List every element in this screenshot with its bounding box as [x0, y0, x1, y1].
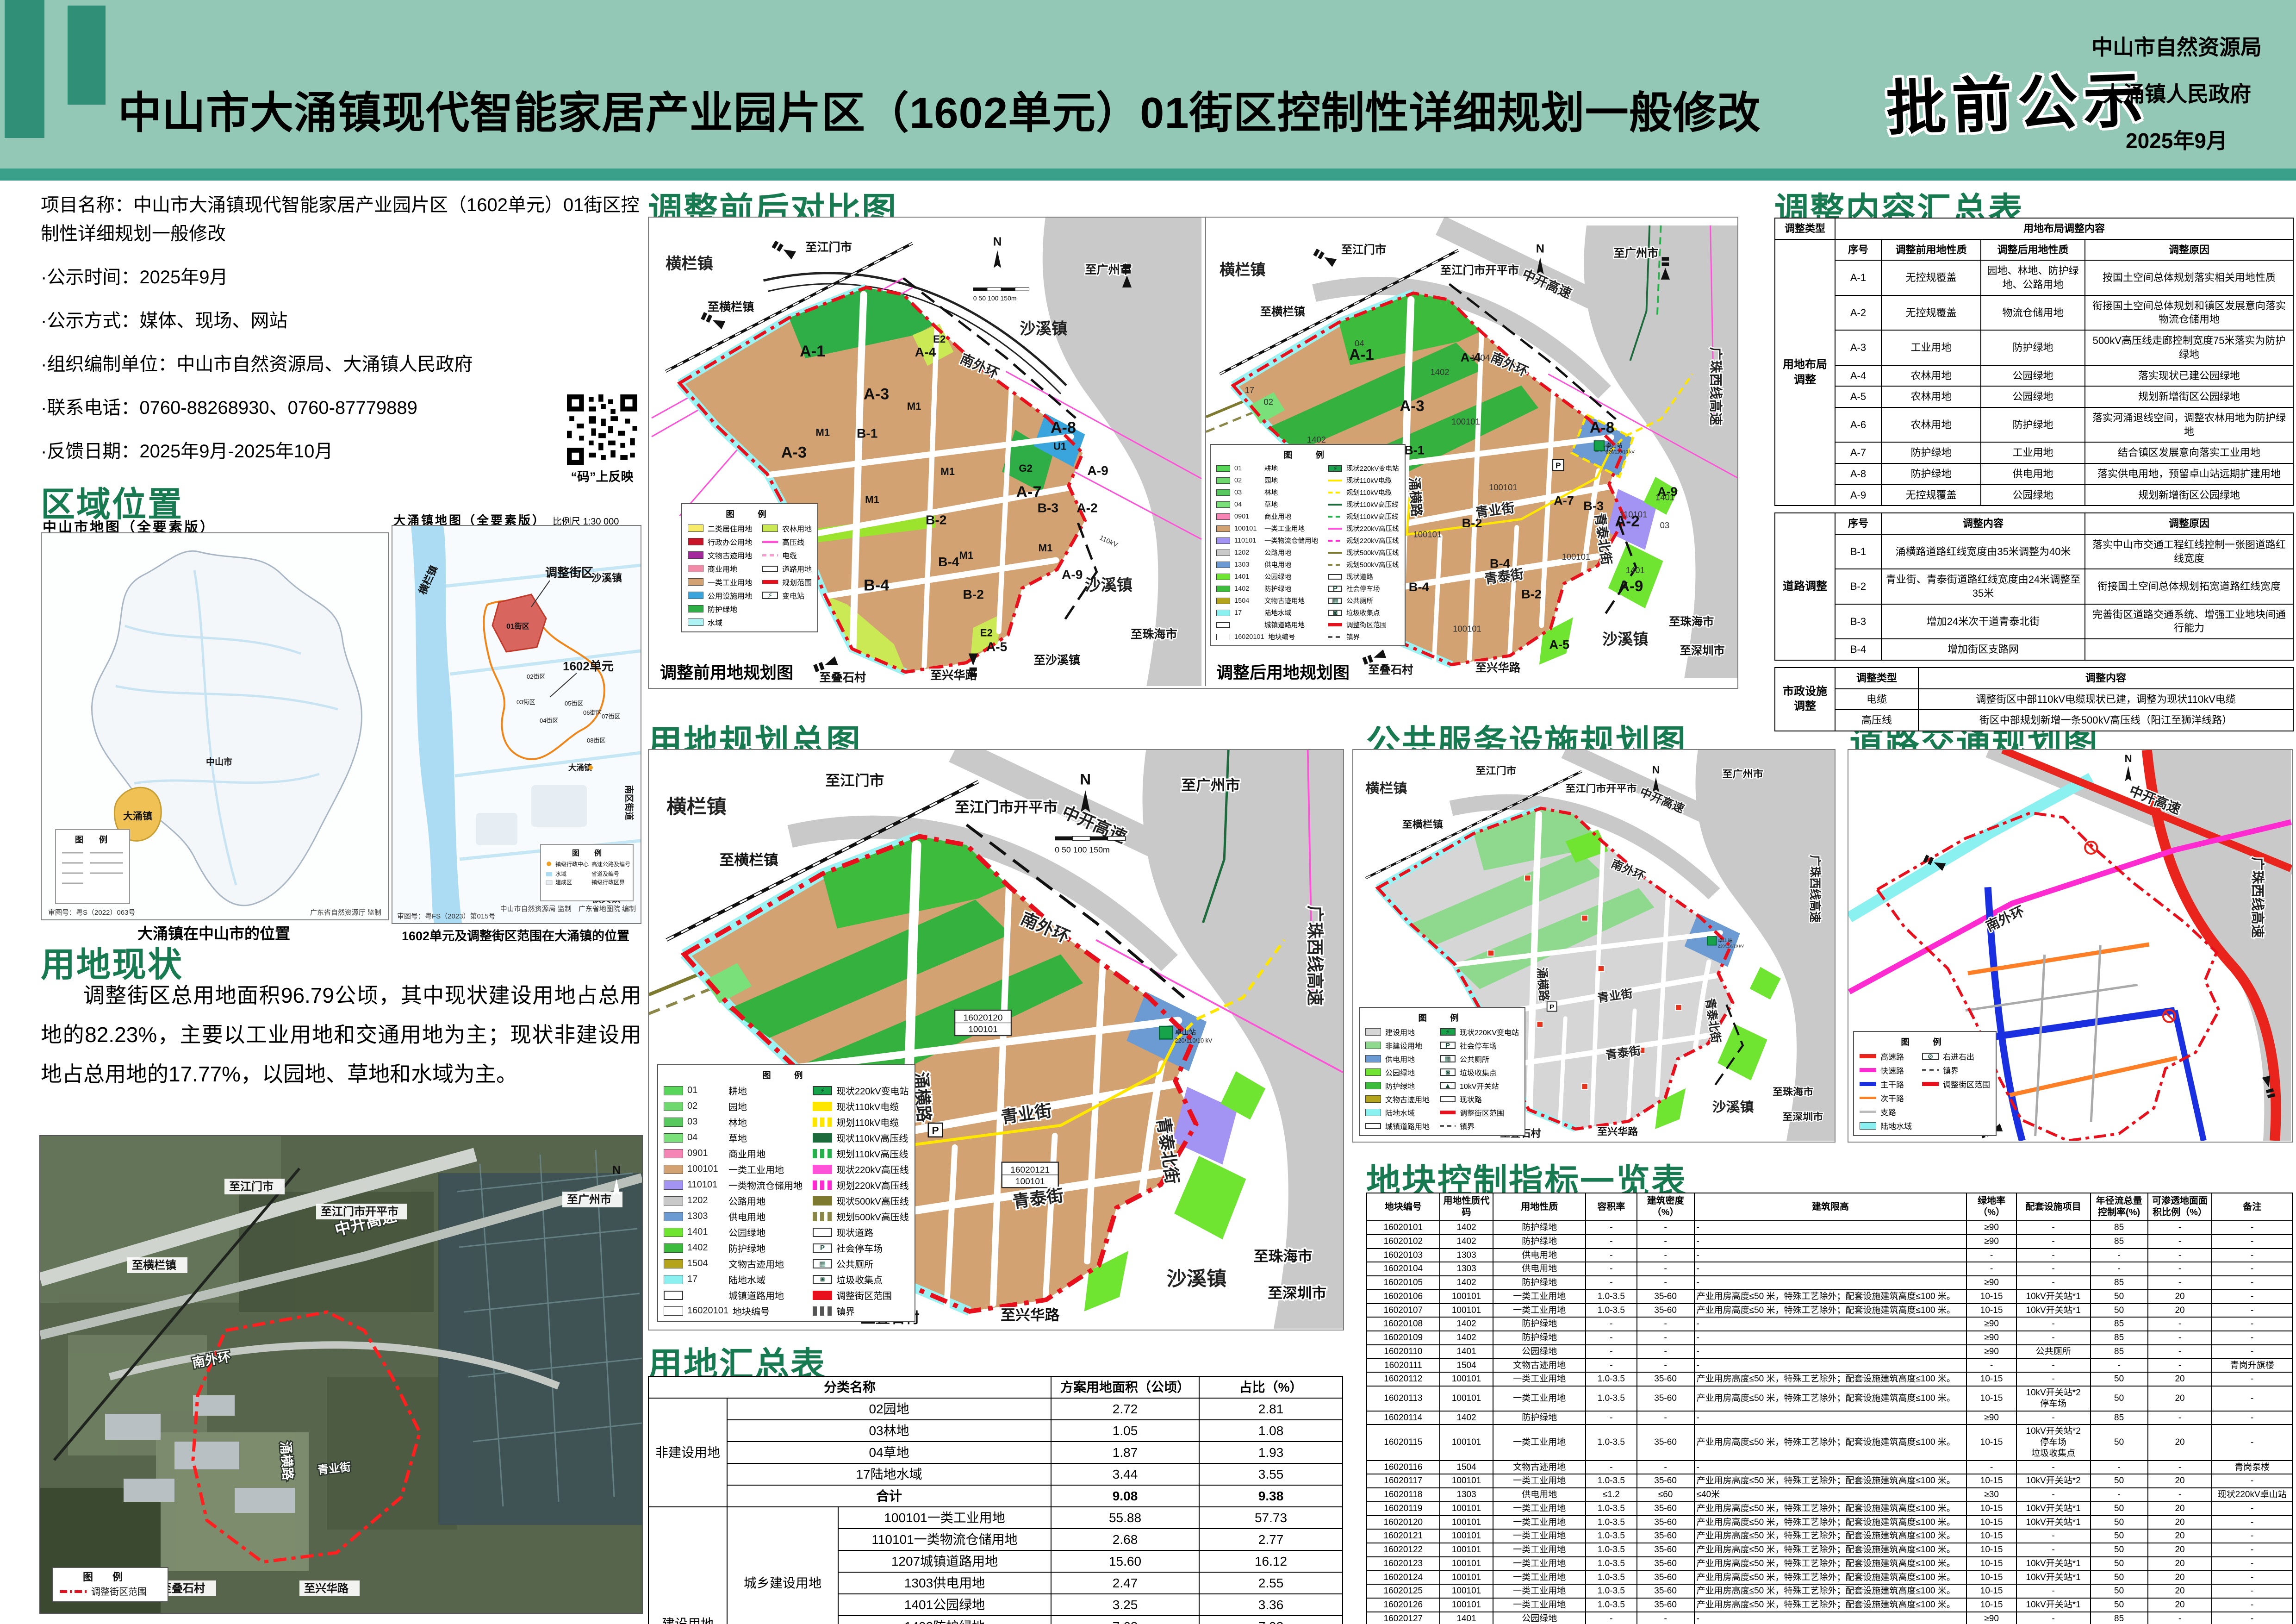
cell: 一类工业用地	[1493, 1598, 1586, 1612]
svg-text:高速公路及编号: 高速公路及编号	[591, 861, 630, 868]
legend-item: 镇界	[1922, 1064, 1990, 1076]
cell: -	[1586, 1317, 1636, 1331]
cell: 公共厕所	[2016, 1345, 2091, 1359]
master-plan-panel: 16020119100101 16020120100101 1602012110…	[648, 749, 1344, 1330]
adjust-table-road: 道路调整 序号 调整内容 调整原因 B-1 涌横路道路红线宽度由35米调整为40…	[1774, 512, 2294, 661]
cell: -	[2212, 1345, 2292, 1359]
poster: 中山市大涌镇现代智能家居产业园片区（1602单元）01街区控制性详细规划一般修改…	[0, 0, 2296, 1624]
table-row: B-4 增加街区支路网	[1775, 639, 2293, 660]
cell: 50	[2091, 1424, 2148, 1460]
legend-item: 现状110kV高压线	[1328, 500, 1399, 509]
svg-text:卓山站: 卓山站	[1718, 937, 1733, 943]
cell: 产业用房高度≤50 米，特殊工艺除外；配套设施建筑高度≤100 米。	[1694, 1516, 1967, 1530]
legend-item: 现状道路	[813, 1225, 909, 1239]
cell: 一类工业用地	[1493, 1304, 1586, 1318]
legend-item: 现状220kV高压线	[813, 1162, 909, 1176]
cell: -	[2016, 1411, 2091, 1425]
cell: 供电用地	[1493, 1249, 1586, 1262]
svg-text:至江门市开平市: 至江门市开平市	[321, 1205, 398, 1218]
legend-item: ⚡现状220kV变电站	[1328, 463, 1399, 473]
cell: -	[1586, 1461, 1636, 1474]
cell: 电缆	[1835, 689, 1918, 710]
cell: -	[1637, 1249, 1694, 1262]
table-row: 16020104 1303 供电用地 - - - - - - - -	[1367, 1262, 2292, 1276]
legend-item: 规划110kV电缆	[813, 1115, 909, 1129]
project-info-line: ·公示时间：2025年9月	[41, 263, 645, 292]
cell: 公园绿地	[1981, 365, 2085, 387]
cell: 物流仓储用地	[1981, 295, 2085, 330]
issuing-orgs: 中山市自然资源局 大涌镇人民政府 2025年9月	[2091, 24, 2262, 165]
legend-item: 镇界	[1328, 632, 1399, 642]
cell: 园地、林地、防护绿地、公路用地	[1981, 260, 2085, 295]
cell: ≥90	[1966, 1221, 2016, 1235]
cell: 落实现状已建公园绿地	[2085, 365, 2293, 387]
legend-item: P社会停车场	[1440, 1040, 1519, 1051]
cell: -	[1694, 1221, 1967, 1235]
map-label: 涌横路	[278, 1441, 295, 1481]
svg-text:A-2: A-2	[1615, 513, 1639, 530]
legend-item: P社会停车场	[1328, 584, 1399, 593]
cell: 增加街区支路网	[1881, 639, 2085, 660]
svg-text:省道及编号: 省道及编号	[591, 870, 619, 877]
svg-text:02街区: 02街区	[527, 673, 545, 680]
project-info: 项目名称：中山市大涌镇现代智能家居产业园片区（1602单元）01街区控制性详细规…	[41, 191, 645, 481]
cell: A-2	[1835, 295, 1881, 330]
legend-item: 主干路	[1860, 1078, 1912, 1090]
cell: 16020121	[1367, 1529, 1440, 1543]
header: 中山市大涌镇现代智能家居产业园片区（1602单元）01街区控制性详细规划一般修改…	[0, 0, 2296, 181]
cell: -	[1586, 1359, 1636, 1373]
table-row: 16020126 100101 一类工业用地 1.0-3.5 35-60 产业用…	[1367, 1598, 2292, 1612]
table-row: 16020107 100101 一类工业用地 1.0-3.5 35-60 产业用…	[1367, 1304, 2292, 1318]
legend-item: 现状道路	[1328, 572, 1399, 581]
cell: 1401	[1440, 1612, 1493, 1624]
table-row: A-1 无控规覆盖 园地、林地、防护绿地、公路用地 按国土空间总体规划落实相关用…	[1775, 260, 2293, 295]
region-right-caption: 1602单元及调整街区范围在大涌镇的位置	[392, 926, 640, 944]
cell: 500kV高压线走廊控制宽度75米落实为防护绿地	[2085, 330, 2293, 365]
svg-text:A-7: A-7	[1554, 493, 1574, 507]
cell: 防护绿地	[1493, 1411, 1586, 1425]
cell: -	[2212, 1411, 2292, 1425]
svg-text:100101: 100101	[1015, 1176, 1045, 1186]
cell: 50	[2091, 1372, 2148, 1386]
table-row: 16020112 100101 一类工业用地 1.0-3.5 35-60 产业用…	[1367, 1372, 2292, 1386]
legend-item: 防护绿地	[1365, 1080, 1430, 1091]
cell: 产业用房高度≤50 米，特殊工艺除外；配套设施建筑高度≤100 米。	[1694, 1502, 1967, 1516]
region-map-dayong: 01街区 调整街区 1602单元 02街区 03街区 04街区 05街区 06街…	[392, 525, 641, 924]
cell: -	[2212, 1516, 2292, 1530]
svg-text:M1: M1	[1039, 542, 1053, 554]
cell: B-1	[1835, 534, 1881, 569]
cell: 20	[2148, 1386, 2212, 1411]
legend-item: 调整街区范围	[1922, 1078, 1990, 1090]
cell: -	[2016, 1262, 2091, 1276]
table-row: 16020117 100101 一类工业用地 1.0-3.5 35-60 产业用…	[1367, 1474, 2292, 1488]
legend-public: 图 例 建设用地非建设用地供电用地公园绿地防护绿地文物古迹用地陆地水域城镇道路用…	[1359, 1007, 1525, 1136]
cell: 16020111	[1367, 1359, 1440, 1373]
table-subheader-row: 市政设施调整 调整类型 调整内容	[1775, 668, 2293, 689]
zhongshan-map-svg: 大涌镇 中山市 图 例 审图号：粤S（2022）063号 广东省自然资源厅 监制	[42, 533, 388, 919]
cell: -	[1586, 1411, 1636, 1425]
legend-item: 规划220kV高压线	[813, 1178, 909, 1192]
parcel-control-table: 地块编号 用地性质代码 用地性质 容积率 建筑密度（%） 建筑限高 绿地率（%）…	[1366, 1193, 2293, 1624]
cell: 10-15	[1966, 1372, 2016, 1386]
legend-master: 图 例 01耕地02园地03林地04草地0901商业用地100101一类工业用地…	[657, 1064, 915, 1322]
svg-text:A-3: A-3	[781, 444, 807, 462]
svg-text:17: 17	[1245, 385, 1255, 395]
legend-item: 现状路	[1440, 1093, 1519, 1105]
cell: ≥90	[1966, 1411, 2016, 1425]
cell: -	[1637, 1331, 1694, 1345]
table-row: 电缆 调整街区中部110kV电缆现状已建，调整为现状110kV电缆	[1775, 689, 2293, 710]
cell: 35-60	[1637, 1372, 1694, 1386]
cell: 规划新增街区公园绿地	[2085, 386, 2293, 407]
cell: 无控规覆盖	[1881, 485, 1981, 506]
cell: 1.0-3.5	[1586, 1557, 1636, 1571]
cell: 10-15	[1966, 1304, 2016, 1318]
legend-item: 城镇道路用地	[664, 1288, 803, 1302]
org-line-1: 中山市自然资源局	[2091, 24, 2262, 71]
svg-text:0 50 100 150m: 0 50 100 150m	[973, 294, 1017, 302]
legend-item: ⚡变电站	[762, 590, 812, 601]
legend-item: 现状500kV高压线	[813, 1194, 909, 1207]
sat-legend: 图 例 调整街区范围	[52, 1568, 168, 1602]
cell: 1504	[1440, 1359, 1493, 1373]
legend-after: 图 例 01耕地02园地03林地04草地0901商业用地100101一类工业用地…	[1210, 444, 1406, 646]
cell: -	[1637, 1317, 1694, 1331]
cell: 农林用地	[1881, 407, 1981, 442]
cell: 16020115	[1367, 1424, 1440, 1460]
cell: -	[2212, 1249, 2292, 1262]
cell: 16020101	[1367, 1221, 1440, 1235]
cell: 公园绿地	[1981, 386, 2085, 407]
cell: 一类工业用地	[1493, 1474, 1586, 1488]
header-bottom-strip	[0, 169, 2296, 181]
svg-text:至珠海市: 至珠海市	[1254, 1248, 1313, 1265]
cell: 1.0-3.5	[1586, 1304, 1636, 1318]
group-label: 城乡建设用地	[727, 1507, 838, 1624]
cell: 16020109	[1367, 1331, 1440, 1345]
cell: 10kV开关站*1	[2016, 1290, 2091, 1304]
svg-text:A-4: A-4	[1461, 350, 1481, 364]
cell: -	[2212, 1529, 2292, 1543]
cell: -	[2148, 1331, 2212, 1345]
cell: -	[2016, 1372, 2091, 1386]
table-row: A-8 防护绿地 供电用地 落实供电用地，预留卓山站远期扩建用地	[1775, 463, 2293, 485]
legend-item: 调整街区范围	[1440, 1107, 1519, 1118]
svg-text:07街区: 07街区	[602, 713, 620, 720]
cell: 防护绿地	[1493, 1276, 1586, 1290]
cell: 50	[2091, 1543, 2148, 1557]
svg-text:M1: M1	[940, 466, 955, 477]
svg-text:16020120: 16020120	[964, 1013, 1003, 1023]
cell: -	[2212, 1304, 2292, 1318]
cell: 农林用地	[1881, 365, 1981, 387]
cell: 20	[2148, 1502, 2212, 1516]
cell: 35-60	[1637, 1386, 1694, 1411]
svg-text:至江门市: 至江门市	[229, 1180, 274, 1193]
cell: 调整街区中部110kV电缆现状已建，调整为现状110kV电缆	[1918, 689, 2293, 710]
table-row: 16020121 100101 一类工业用地 1.0-3.5 35-60 产业用…	[1367, 1529, 2292, 1543]
table-row: 16020118 1303 供电用地 ≤1.2 ≤60 ≤40米 ≥30 - -…	[1367, 1488, 2292, 1502]
map-label: 南区街道	[624, 785, 635, 820]
svg-text:N: N	[1652, 764, 1660, 775]
cell: -	[2016, 1488, 2091, 1502]
cell: -	[2148, 1411, 2212, 1425]
cell: -	[2016, 1331, 2091, 1345]
map-label: 中山市	[206, 756, 232, 767]
cell: -	[2016, 1461, 2091, 1474]
cell: 一类工业用地	[1493, 1529, 1586, 1543]
cell: -	[2212, 1557, 2292, 1571]
cell: 供电用地	[1493, 1262, 1586, 1276]
cell: 20	[2148, 1290, 2212, 1304]
cell: -	[1637, 1411, 1694, 1425]
cell: 10kV开关站*1	[2016, 1571, 2091, 1585]
cell: -	[1586, 1249, 1636, 1262]
legend-item: 一类工业用地	[688, 576, 752, 587]
table-row: 16020108 1402 防护绿地 - - - ≥90 - 85 - -	[1367, 1317, 2292, 1331]
legend-item: 陆地水域	[1860, 1120, 1912, 1131]
cell: 50	[2091, 1386, 2148, 1411]
legend-item: 1401公园绿地	[1216, 572, 1318, 581]
region-map-zhongshan: 大涌镇 中山市 图 例 审图号：粤S（2022）063号 广东省自然资源厅 监制	[41, 532, 389, 920]
svg-text:U1: U1	[1053, 440, 1066, 452]
legend-item: 建设用地	[1365, 1026, 1430, 1037]
cell: 一类工业用地	[1493, 1571, 1586, 1585]
cell: 100101	[1440, 1372, 1493, 1386]
legend-item: 现状220kV高压线	[1328, 524, 1399, 533]
svg-text:220/110/10 kV: 220/110/10 kV	[1606, 450, 1635, 455]
svg-text:至珠海市: 至珠海市	[1131, 627, 1177, 641]
cell: -	[2091, 1262, 2148, 1276]
svg-text:图 例: 图 例	[83, 1571, 127, 1583]
cell: A-7	[1835, 442, 1881, 463]
legend-item: 现状110kV电缆	[813, 1099, 909, 1113]
legend-item: 行政办公用地	[688, 536, 752, 547]
svg-text:E2: E2	[980, 627, 993, 638]
legend-item: ◙垃圾收集点	[813, 1273, 909, 1286]
cell: 一类工业用地	[1493, 1543, 1586, 1557]
cell: 100101	[1440, 1516, 1493, 1530]
cell: 产业用房高度≤50 米，特殊工艺除外；配套设施建筑高度≤100 米。	[1694, 1557, 1967, 1571]
cell: 85	[2091, 1221, 2148, 1235]
cell: 20	[2148, 1557, 2212, 1571]
cell: 衔接国土空间总体规划和镇区发展意向落实物流仓储用地	[2085, 295, 2293, 330]
svg-text:P: P	[1549, 1003, 1555, 1011]
cell: 16020113	[1367, 1386, 1440, 1411]
cell: 85	[2091, 1317, 2148, 1331]
svg-text:A-9: A-9	[1657, 484, 1678, 499]
cell: -	[2212, 1502, 2292, 1516]
cell: 85	[2091, 1331, 2148, 1345]
svg-text:至江门市开平市: 至江门市开平市	[955, 799, 1058, 816]
cell: ≥90	[1966, 1612, 2016, 1624]
svg-text:至广州市: 至广州市	[1723, 768, 1763, 779]
cell: 1303	[1440, 1262, 1493, 1276]
svg-text:至珠海市: 至珠海市	[1773, 1086, 1813, 1097]
cell: 完善街区道路交通系统、增强工业地块间通行能力	[2085, 604, 2293, 639]
cell: -	[2016, 1235, 2091, 1249]
cell: 20	[2148, 1598, 2212, 1612]
svg-text:卓山站: 卓山站	[1606, 442, 1622, 449]
group-label: 市政设施调整	[1775, 668, 1835, 731]
svg-text:A-9: A-9	[1618, 578, 1643, 595]
legend-item: 调整街区范围	[1328, 620, 1399, 630]
legend-item: 城镇道路用地	[1216, 620, 1318, 630]
cell: -	[2091, 1461, 2148, 1474]
cell: 16020116	[1367, 1461, 1440, 1474]
cell: 1.0-3.5	[1586, 1584, 1636, 1598]
cell: 35-60	[1637, 1502, 1694, 1516]
group-label: 道路调整	[1775, 513, 1835, 660]
cell: 产业用房高度≤50 米，特殊工艺除外；配套设施建筑高度≤100 米。	[1694, 1304, 1967, 1318]
cell	[2085, 639, 2293, 660]
cell: -	[1586, 1331, 1636, 1345]
table-row: 16020111 1504 文物古迹用地 - - - - - - - 青岗升旗楼	[1367, 1359, 2292, 1373]
cell: 防护绿地	[1981, 330, 2085, 365]
svg-text:涌横路: 涌横路	[1535, 967, 1550, 1002]
legend-item: 供电用地	[1365, 1053, 1430, 1064]
org-line-2: 大涌镇人民政府	[2091, 71, 2262, 118]
cell: A-3	[1835, 330, 1881, 365]
table-row: 16020102 1402 防护绿地 - - - ≥90 - 85 - -	[1367, 1235, 2292, 1249]
svg-text:P: P	[1556, 461, 1561, 470]
table-row: B-1 涌横路道路红线宽度由35米调整为40米 落实中山市交通工程红线控制一张图…	[1775, 534, 2293, 569]
cell: 1303	[1440, 1249, 1493, 1262]
project-info-line: ·组织编制单位：中山市自然资源局、大涌镇人民政府	[41, 350, 645, 379]
cell: -	[2212, 1276, 2292, 1290]
cell: 防护绿地	[1981, 407, 2085, 442]
cell: -	[2212, 1235, 2292, 1249]
cell: -	[1637, 1345, 1694, 1359]
svg-text:广珠西线高速: 广珠西线高速	[1709, 347, 1724, 425]
cell: 16020117	[1367, 1474, 1440, 1488]
cell: 一类工业用地	[1493, 1386, 1586, 1411]
cell: 防护绿地	[1493, 1221, 1586, 1235]
svg-text:04街区: 04街区	[540, 717, 558, 724]
cell: 16020110	[1367, 1345, 1440, 1359]
svg-text:至江门市开平市: 至江门市开平市	[1440, 264, 1519, 277]
cell: 10kV开关站*2 停车场	[2016, 1386, 2091, 1411]
cell: -	[2212, 1598, 2292, 1612]
cell: 10kV开关站*1	[2016, 1557, 2091, 1571]
cell: 青岗泵楼	[2212, 1461, 2292, 1474]
legend-item: 规划范围	[762, 576, 812, 587]
cell: 1402	[1440, 1235, 1493, 1249]
cell: -	[2016, 1276, 2091, 1290]
legend-item: 文物古迹用地	[1365, 1093, 1430, 1105]
cell: -	[2016, 1359, 2091, 1373]
cell: -	[2148, 1488, 2212, 1502]
svg-text:至珠海市: 至珠海市	[1669, 615, 1714, 628]
legend-item: 调整街区范围	[813, 1288, 909, 1302]
cell: -	[1966, 1249, 2016, 1262]
legend-item: 03林地	[1216, 487, 1318, 497]
group-label: 用地布局调整	[1775, 239, 1835, 506]
legend-item: 防护绿地	[688, 603, 752, 614]
cell: 100101	[1440, 1386, 1493, 1411]
cell: -	[1694, 1276, 1967, 1290]
table-row: A-2 无控规覆盖 物流仓储用地 衔接国土空间总体规划和镇区发展意向落实物流仓储…	[1775, 295, 2293, 330]
cell: 规划新增街区公园绿地	[2085, 485, 2293, 506]
legend-item: 规划110kV电缆	[1328, 487, 1399, 497]
table-row: 16020103 1303 供电用地 - - - - - - - -	[1367, 1249, 2292, 1262]
cell: 16020124	[1367, 1571, 1440, 1585]
table-row: 17陆地水域3.443.55	[648, 1463, 1343, 1485]
map-label: 01街区	[506, 622, 529, 631]
svg-text:1401: 1401	[1626, 565, 1645, 575]
svg-text:A-8: A-8	[1051, 419, 1076, 437]
cell: -	[2148, 1317, 2212, 1331]
table-row: 16020113 100101 一类工业用地 1.0-3.5 35-60 产业用…	[1367, 1386, 2292, 1411]
cell: -	[2212, 1372, 2292, 1386]
cell: -	[1694, 1359, 1967, 1373]
cell: 公园绿地	[1981, 485, 2085, 506]
table-row: 16020125 100101 一类工业用地 1.0-3.5 35-60 产业用…	[1367, 1584, 2292, 1598]
cell: 85	[2091, 1612, 2148, 1624]
cell: -	[2091, 1488, 2148, 1502]
table-subheader-row: 用地布局调整 序号 调整前用地性质 调整后用地性质 调整原因	[1775, 239, 2293, 261]
cell: -	[1966, 1461, 2016, 1474]
cell: 10-15	[1966, 1516, 2016, 1530]
cell: 产业用房高度≤50 米，特殊工艺除外；配套设施建筑高度≤100 米。	[1694, 1290, 1967, 1304]
cell: 10-15	[1966, 1571, 2016, 1585]
table-row: 高压线 街区中部规划新增一条500kV高压线（阳江至狮洋线路）	[1775, 710, 2293, 731]
svg-text:A-9: A-9	[1087, 463, 1108, 478]
cell: -	[2016, 1612, 2091, 1624]
cell: 16020120	[1367, 1516, 1440, 1530]
cell: 10-15	[1966, 1584, 2016, 1598]
legend-item: 1202公路用地	[664, 1194, 803, 1207]
cell: ≤1.2	[1586, 1488, 1636, 1502]
svg-text:05街区: 05街区	[565, 700, 583, 707]
svg-text:A-5: A-5	[1549, 637, 1569, 652]
cell: 1.0-3.5	[1586, 1290, 1636, 1304]
cell: 10kV开关站*2 停车场 垃圾收集点	[2016, 1424, 2091, 1460]
table-subheader-row: 道路调整 序号 调整内容 调整原因	[1775, 513, 2293, 534]
adjust-table-municipal: 市政设施调整 调整类型 调整内容 电缆 调整街区中部110kV电缆现状已建，调整…	[1774, 667, 2294, 731]
svg-text:至兴华路: 至兴华路	[1475, 661, 1521, 674]
legend-item: 03林地	[664, 1115, 803, 1129]
table-row: B-2 青业街、青泰街道路红线宽度由24米调整至35米 衔接国土空间总体规划拓宽…	[1775, 569, 2293, 604]
table-row: A-6 农林用地 防护绿地 落实河涌退线空间，调整农林用地为防护绿地	[1775, 407, 2293, 442]
svg-text:M1: M1	[907, 400, 921, 412]
cell: 文物古迹用地	[1493, 1359, 1586, 1373]
svg-text:沙溪镇: 沙溪镇	[1712, 1100, 1754, 1115]
legend-item: 02园地	[664, 1099, 803, 1113]
cell: 16020112	[1367, 1372, 1440, 1386]
cell: 50	[2091, 1529, 2148, 1543]
cell: -	[2148, 1249, 2212, 1262]
cell: 产业用房高度≤50 米，特殊工艺除外；配套设施建筑高度≤100 米。	[1694, 1474, 1967, 1488]
cell: -	[2148, 1235, 2212, 1249]
cell: 100101	[1440, 1543, 1493, 1557]
legend-item: ◙垃圾收集点	[1328, 608, 1399, 618]
cell: -	[1637, 1262, 1694, 1276]
cell: 35-60	[1637, 1424, 1694, 1460]
cell: 1402	[1440, 1411, 1493, 1425]
legend-item: 电缆	[762, 550, 812, 561]
cell: 50	[2091, 1502, 2148, 1516]
cell: -	[1586, 1221, 1636, 1235]
cell: 一类工业用地	[1493, 1502, 1586, 1516]
cell: 85	[2091, 1411, 2148, 1425]
legend-item: 规划220kV高压线	[1328, 536, 1399, 545]
cell: 16020123	[1367, 1557, 1440, 1571]
svg-text:220/110/10 kV: 220/110/10 kV	[1718, 944, 1744, 949]
legend-item: ▲10kV开关站	[1440, 1080, 1519, 1091]
